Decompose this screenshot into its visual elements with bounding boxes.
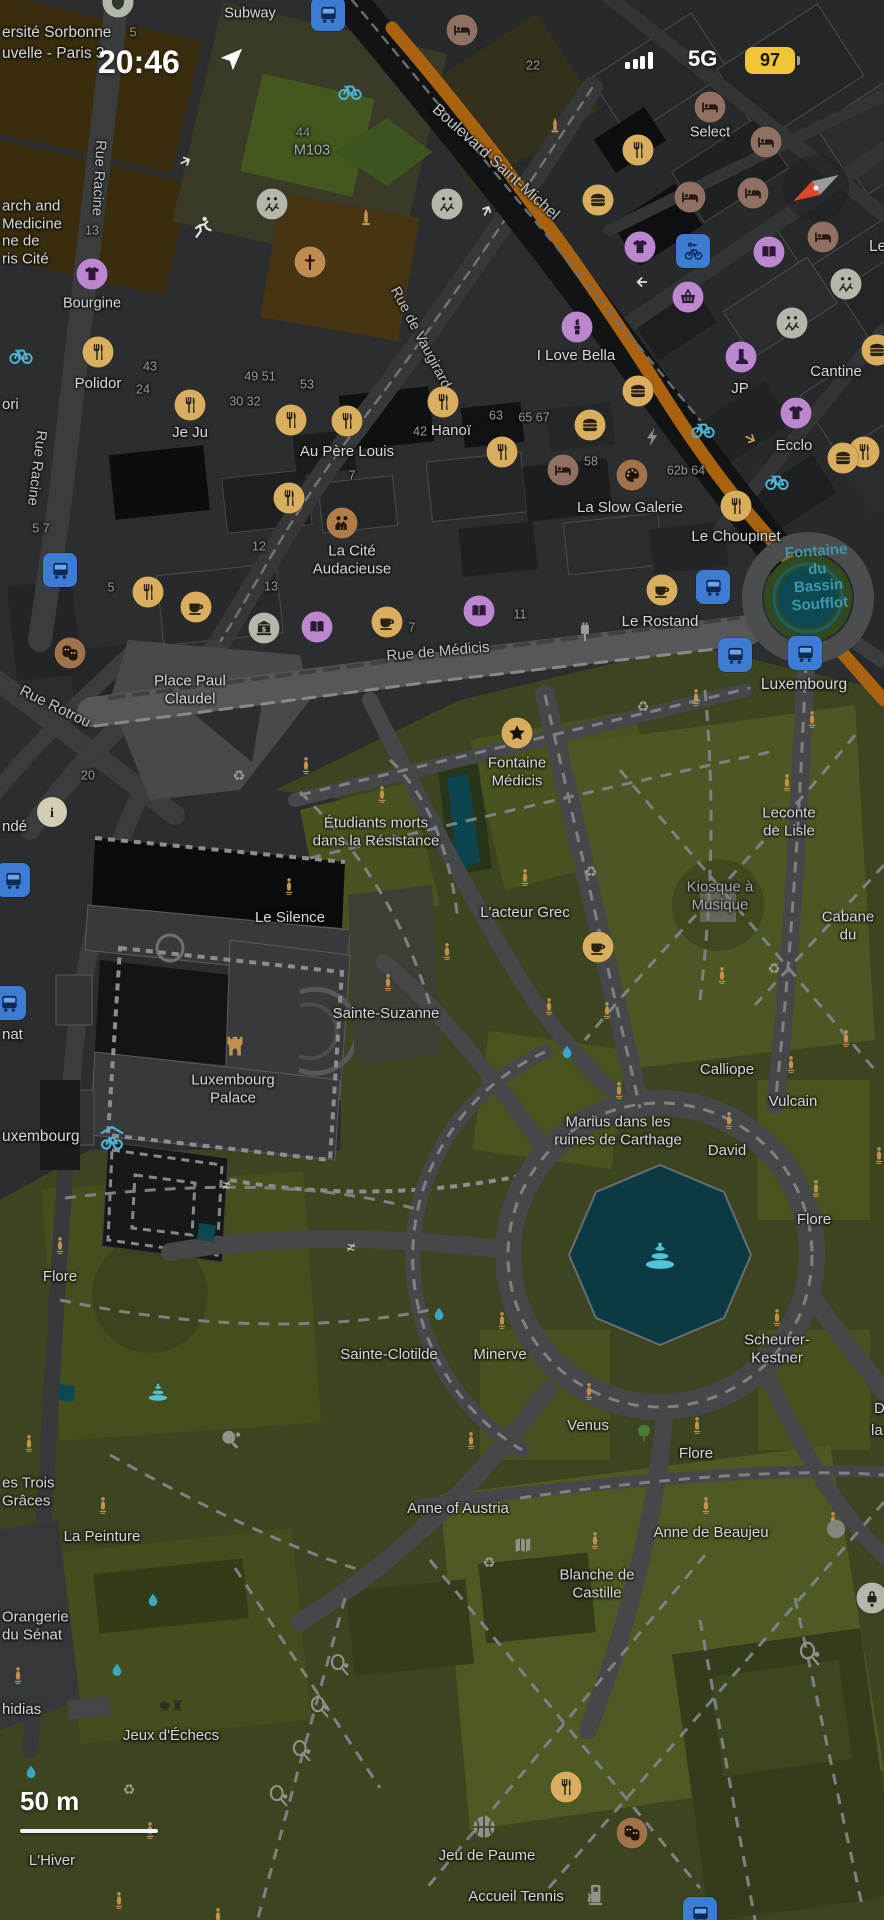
maps-app-screen: Subwayersité Sorbonneuvelle - Paris 3522… xyxy=(0,0,884,1920)
scale-bar: 50 m xyxy=(20,1786,158,1833)
compass[interactable] xyxy=(783,155,849,221)
scale-line xyxy=(20,1829,158,1833)
scale-label: 50 m xyxy=(20,1786,158,1817)
map-canvas[interactable] xyxy=(0,0,884,1920)
